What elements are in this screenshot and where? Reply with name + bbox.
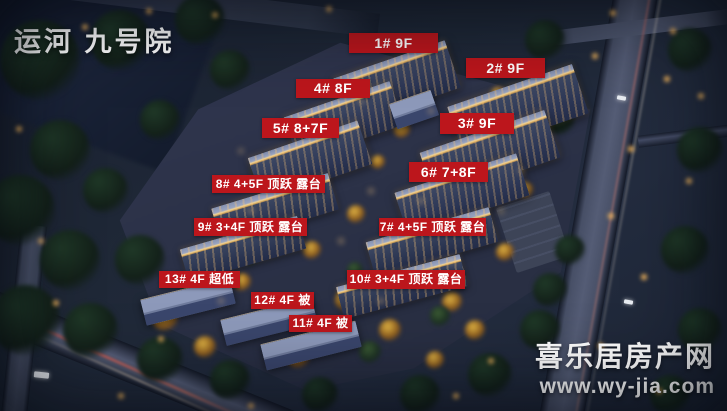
tree [210, 50, 250, 90]
building-label-13: 13# 4F 超低 [159, 271, 240, 288]
autumn-tree [379, 319, 401, 341]
landscape-lights [0, 0, 2, 2]
car [624, 299, 634, 305]
building-label-11: 11# 4F 被 [289, 315, 352, 332]
tree [661, 226, 709, 274]
tree [0, 175, 55, 245]
building-label-9: 9# 3+4F 顶跃 露台 [194, 218, 307, 236]
tree [210, 360, 250, 400]
watermark-site-url: www.wy-jia.com [535, 375, 715, 399]
tree [83, 168, 128, 213]
tree [533, 273, 567, 307]
autumn-tree [194, 336, 216, 358]
building-label-3: 3# 9F [440, 113, 514, 134]
tree [525, 20, 565, 60]
tree [555, 235, 585, 265]
building-label-2: 2# 9F [466, 58, 545, 78]
building-label-1: 1# 9F [349, 33, 438, 53]
tree [468, 353, 512, 397]
tree [137, 337, 183, 383]
building-label-4: 4# 8F [296, 79, 370, 98]
autumn-tree [426, 351, 444, 369]
building-label-8: 8# 4+5F 顶跃 露台 [212, 175, 325, 193]
building-label-7: 7# 4+5F 顶跃 露台 [379, 218, 486, 236]
watermark-site-name: 喜乐居房产网 [535, 335, 715, 375]
tree [302, 377, 338, 411]
tree [668, 28, 712, 72]
autumn-tree [465, 320, 485, 340]
tree [430, 306, 450, 326]
tree [359, 341, 381, 363]
tree [40, 230, 100, 290]
tree [175, 0, 225, 45]
aerial-night-render: 运河 九号院 1# 9F 2# 9F 4# 8F 5# 8+7F 3# 9F 6… [0, 0, 727, 411]
tree [63, 303, 118, 358]
autumn-tree [496, 243, 514, 261]
tree [140, 100, 180, 140]
truck [34, 371, 50, 379]
watermark: 喜乐居房产网 www.wy-jia.com [535, 335, 715, 399]
building-label-10: 10# 3+4F 顶跃 露台 [347, 270, 465, 289]
building-label-12: 12# 4F 被 [251, 292, 314, 309]
autumn-tree [303, 241, 321, 259]
tree [115, 235, 165, 285]
project-title: 运河 九号院 [14, 20, 175, 59]
autumn-tree [347, 205, 365, 223]
autumn-tree [371, 155, 385, 169]
tree [30, 120, 90, 180]
building-label-6: 6# 7+8F [409, 162, 488, 182]
tree [677, 127, 723, 173]
tree [400, 375, 440, 411]
building-label-5: 5# 8+7F [262, 118, 339, 138]
